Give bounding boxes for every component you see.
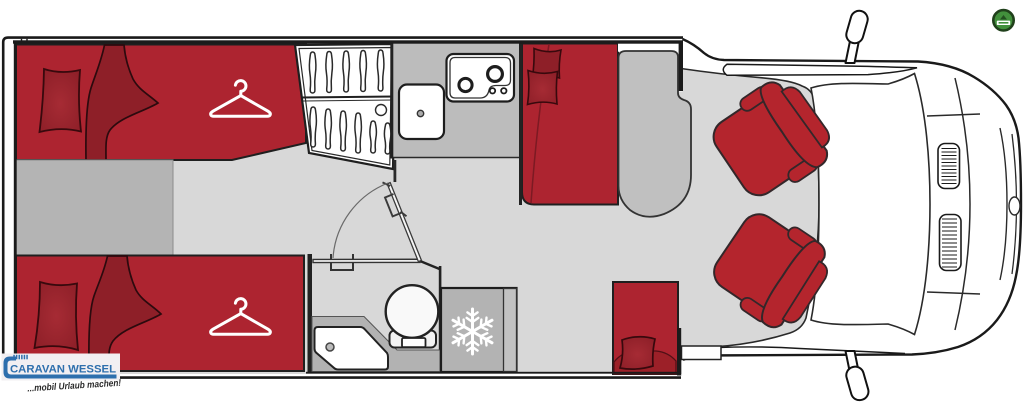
svg-text:CARAVAN WESSEL: CARAVAN WESSEL [10,364,116,376]
